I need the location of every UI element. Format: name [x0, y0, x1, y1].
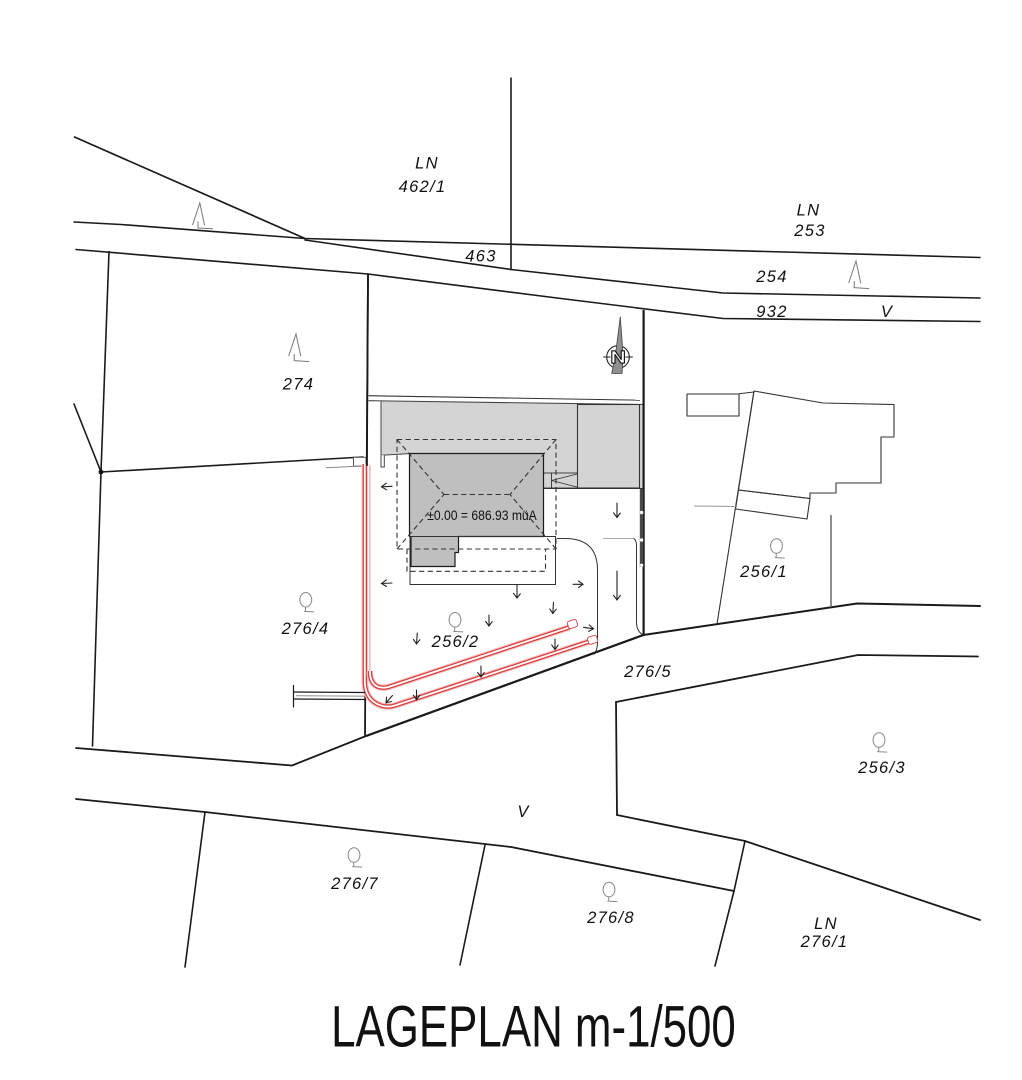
svg-text:276/1: 276/1 — [800, 933, 849, 951]
svg-text:±0.00 = 686.93 müA: ±0.00 = 686.93 müA — [427, 507, 537, 523]
svg-text:274: 274 — [282, 376, 314, 394]
svg-text:256/1: 256/1 — [739, 563, 788, 581]
svg-text:276/7: 276/7 — [330, 875, 379, 893]
svg-text:LN: LN — [814, 915, 838, 933]
svg-text:256/3: 256/3 — [857, 759, 906, 777]
svg-text:462/1: 462/1 — [399, 178, 447, 196]
svg-text:V: V — [881, 303, 894, 321]
svg-text:253: 253 — [793, 222, 825, 240]
svg-text:276/8: 276/8 — [586, 909, 635, 927]
svg-text:256/2: 256/2 — [431, 633, 480, 651]
svg-text:LN: LN — [415, 155, 439, 173]
svg-text:254: 254 — [755, 268, 787, 286]
svg-text:LAGEPLAN m-1/500: LAGEPLAN m-1/500 — [331, 993, 736, 1059]
svg-text:LN: LN — [797, 202, 821, 220]
svg-text:276/5: 276/5 — [623, 663, 672, 681]
svg-text:932: 932 — [756, 303, 787, 321]
svg-text:276/4: 276/4 — [281, 620, 330, 638]
svg-text:V: V — [517, 803, 530, 821]
svg-text:463: 463 — [465, 248, 496, 266]
